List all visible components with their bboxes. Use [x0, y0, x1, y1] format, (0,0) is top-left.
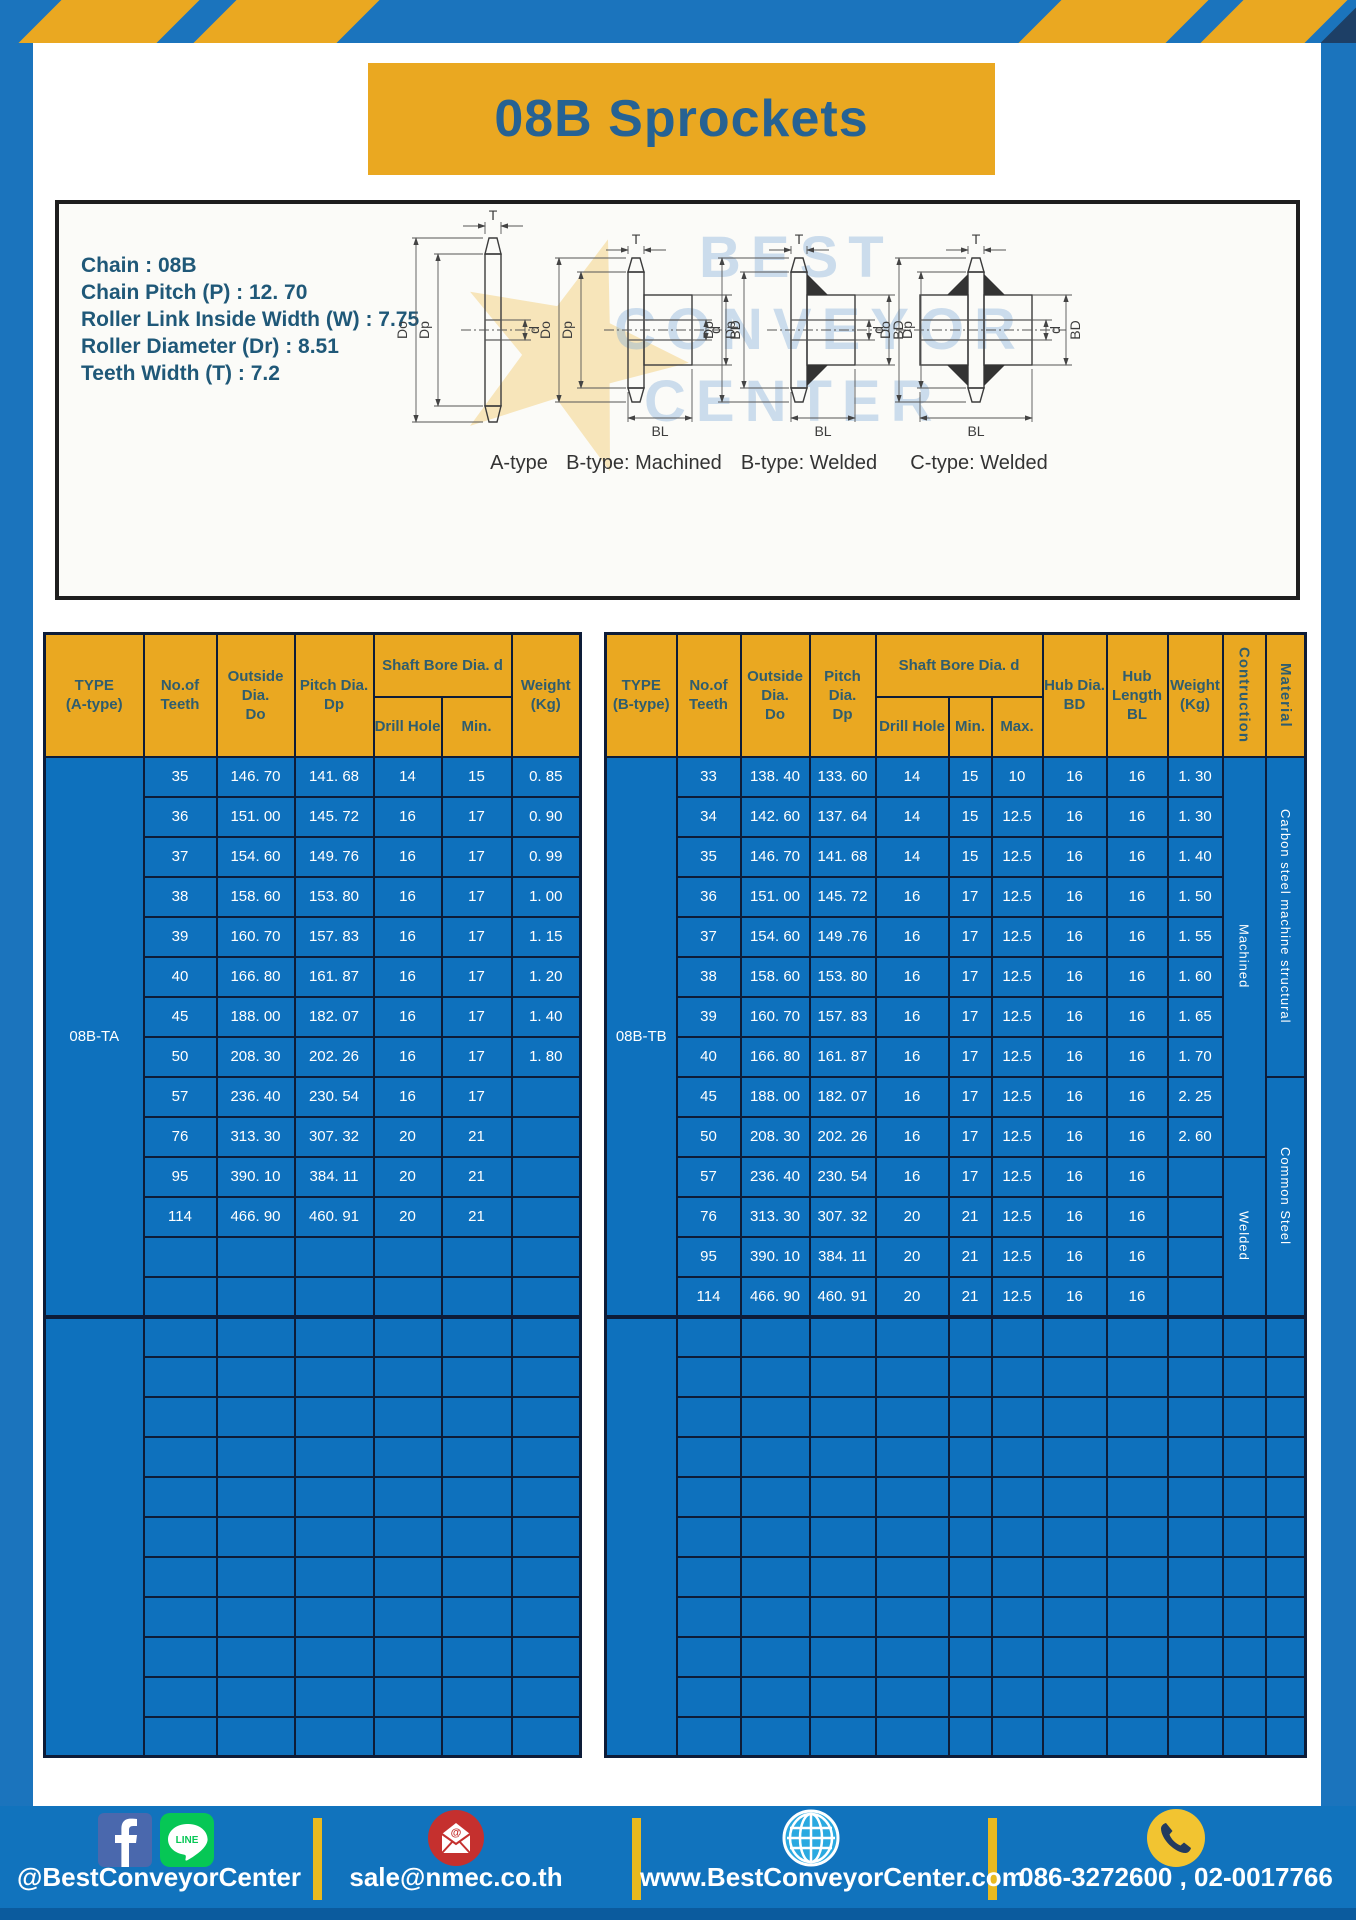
table-row: 76313. 30307. 32202112.51616	[606, 1197, 1306, 1237]
table-cell	[144, 1317, 217, 1357]
table-cell: 37	[677, 917, 741, 957]
table-cell	[512, 1637, 581, 1677]
table-cell: 202. 26	[295, 1037, 374, 1077]
table-cell	[810, 1357, 876, 1397]
table-cell: 12.5	[992, 997, 1043, 1037]
table-cell: 1. 55	[1168, 917, 1223, 957]
table-cell	[512, 1277, 581, 1317]
table-cell: 141. 68	[810, 837, 876, 877]
table-cell: 21	[949, 1237, 992, 1277]
table-cell: 208. 30	[741, 1117, 810, 1157]
table-cell: 16	[374, 877, 442, 917]
table-cell	[1168, 1157, 1223, 1197]
table-cell	[992, 1357, 1043, 1397]
table-cell	[677, 1717, 741, 1757]
table-cell	[1107, 1437, 1168, 1477]
table-cell	[1223, 1677, 1266, 1717]
table-cell: 146. 70	[741, 837, 810, 877]
table-cell: 153. 80	[810, 957, 876, 997]
table-cell	[374, 1277, 442, 1317]
table-row	[606, 1517, 1306, 1557]
table-cell	[876, 1557, 949, 1597]
table-cell	[144, 1237, 217, 1277]
table-cell: 16	[1043, 997, 1107, 1037]
table-row: 45188. 00182. 07161712.516162. 25Common …	[606, 1077, 1306, 1117]
table-cell: 16	[1107, 837, 1168, 877]
table-cell: 21	[442, 1117, 512, 1157]
table-cell	[1043, 1357, 1107, 1397]
table-cell	[1223, 1477, 1266, 1517]
table-cell	[295, 1477, 374, 1517]
table-cell	[217, 1677, 295, 1717]
table-cell: 460. 91	[810, 1277, 876, 1317]
table-cell	[876, 1317, 949, 1357]
table-cell	[295, 1317, 374, 1357]
table-cell: 10	[992, 757, 1043, 797]
table-cell: 142. 60	[741, 797, 810, 837]
table-cell	[1168, 1637, 1223, 1677]
table-cell: 12.5	[992, 1037, 1043, 1077]
table-cell	[949, 1397, 992, 1437]
table-cell: 236. 40	[217, 1077, 295, 1117]
table-cell	[374, 1717, 442, 1757]
table-cell: 39	[144, 917, 217, 957]
table-cell: 114	[677, 1277, 741, 1317]
table-cell	[876, 1637, 949, 1677]
table-cell: 138. 40	[741, 757, 810, 797]
table-cell	[144, 1477, 217, 1517]
table-cell	[949, 1437, 992, 1477]
table-cell	[374, 1317, 442, 1357]
website-url[interactable]: www.BestConveyorCenter.com	[640, 1862, 982, 1893]
table-cell	[1168, 1477, 1223, 1517]
table-cell: 21	[442, 1157, 512, 1197]
table-cell: 1. 00	[512, 877, 581, 917]
table-cell	[1168, 1237, 1223, 1277]
table-cell: 12.5	[992, 1197, 1043, 1237]
hazard-stripe	[19, 0, 200, 43]
table-cell	[876, 1677, 949, 1717]
svg-text:T: T	[972, 231, 981, 247]
hazard-stripe	[1019, 0, 1209, 43]
col-header-type: TYPE(A-type)	[45, 634, 144, 757]
email-address[interactable]: sale@nmec.co.th	[326, 1862, 586, 1893]
table-cell: 230. 54	[295, 1077, 374, 1117]
svg-text:BL: BL	[967, 423, 984, 439]
table-cell: 50	[677, 1117, 741, 1157]
table-cell	[374, 1477, 442, 1517]
table-cell	[810, 1517, 876, 1557]
table-row: 34142. 60137. 64141512.516161. 30	[606, 797, 1306, 837]
table-cell: 313. 30	[217, 1117, 295, 1157]
table-cell: 12.5	[992, 797, 1043, 837]
globe-icon[interactable]	[782, 1809, 840, 1867]
table-cell: 12.5	[992, 837, 1043, 877]
svg-text:Dp: Dp	[722, 321, 738, 339]
table-cell	[1168, 1597, 1223, 1637]
table-cell	[374, 1517, 442, 1557]
table-cell	[677, 1437, 741, 1477]
table-cell	[992, 1597, 1043, 1637]
table-cell: 35	[677, 837, 741, 877]
table-cell: 16	[1107, 1077, 1168, 1117]
table-cell	[144, 1717, 217, 1757]
table-cell: 114	[144, 1197, 217, 1237]
svg-text:Dp: Dp	[416, 321, 432, 339]
col-header-hub-dia: Hub Dia.BD	[1043, 634, 1107, 757]
table-cell	[1266, 1677, 1306, 1717]
table-cell: 313. 30	[741, 1197, 810, 1237]
table-cell: 16	[374, 1037, 442, 1077]
table-cell: 188. 00	[741, 1077, 810, 1117]
table-cell: 16	[876, 917, 949, 957]
table-cell	[810, 1477, 876, 1517]
table-cell: 17	[442, 1077, 512, 1117]
svg-text:BL: BL	[651, 423, 668, 439]
table-cell: 17	[442, 797, 512, 837]
table-cell	[1107, 1597, 1168, 1637]
table-cell	[876, 1597, 949, 1637]
table-cell	[442, 1597, 512, 1637]
table-cell: 460. 91	[295, 1197, 374, 1237]
table-cell: 57	[677, 1157, 741, 1197]
col-header-min: Min.	[949, 697, 992, 757]
col-header-pitch-dia: Pitch Dia.Dp	[295, 634, 374, 757]
material-cell: Common Steel	[1266, 1077, 1306, 1317]
table-cell	[1168, 1677, 1223, 1717]
table-cell: 16	[1043, 1117, 1107, 1157]
type-label-cell	[606, 1317, 677, 1757]
table-cell	[1266, 1357, 1306, 1397]
table-cell	[992, 1677, 1043, 1717]
table-cell: 154. 60	[741, 917, 810, 957]
table-cell	[1043, 1597, 1107, 1637]
table-cell: 0. 99	[512, 837, 581, 877]
table-cell: 1. 60	[1168, 957, 1223, 997]
table-row	[606, 1677, 1306, 1717]
table-cell	[741, 1437, 810, 1477]
table-cell	[295, 1517, 374, 1557]
table-cell	[1043, 1517, 1107, 1557]
table-cell: 202. 26	[810, 1117, 876, 1157]
table-cell	[1266, 1437, 1306, 1477]
table-cell: 1. 40	[512, 997, 581, 1037]
table-cell: 151. 00	[741, 877, 810, 917]
table-cell	[512, 1397, 581, 1437]
table-cell: 16	[374, 1077, 442, 1117]
table-cell: 40	[144, 957, 217, 997]
table-cell	[677, 1317, 741, 1357]
table-cell	[512, 1677, 581, 1717]
table-cell: 12.5	[992, 1077, 1043, 1117]
table-cell: 149 .76	[810, 917, 876, 957]
table-cell: 12.5	[992, 917, 1043, 957]
table-cell: 160. 70	[741, 997, 810, 1037]
table-cell	[512, 1237, 581, 1277]
svg-text:T: T	[795, 231, 804, 247]
table-cell: 16	[1107, 757, 1168, 797]
construction-cell: Machined	[1223, 757, 1266, 1157]
table-cell	[741, 1717, 810, 1757]
table-cell	[1107, 1357, 1168, 1397]
table-cell	[1266, 1717, 1306, 1757]
table-cell: 17	[442, 877, 512, 917]
footer-bottom-strip	[0, 1908, 1356, 1920]
table-cell	[442, 1557, 512, 1597]
svg-text:LINE: LINE	[176, 1835, 199, 1846]
table-cell: 20	[876, 1237, 949, 1277]
table-cell: 390. 10	[217, 1157, 295, 1197]
table-cell	[1223, 1557, 1266, 1597]
table-cell	[442, 1677, 512, 1717]
col-header-material: Material	[1266, 634, 1306, 757]
svg-text:Do: Do	[877, 321, 893, 339]
svg-text:Dp: Dp	[559, 321, 575, 339]
table-cell: 15	[949, 797, 992, 837]
table-cell	[876, 1397, 949, 1437]
table-cell: 50	[144, 1037, 217, 1077]
table-cell: 1. 15	[512, 917, 581, 957]
table-cell	[741, 1557, 810, 1597]
table-cell	[741, 1677, 810, 1717]
table-cell: 17	[949, 957, 992, 997]
table-cell: 20	[374, 1157, 442, 1197]
table-cell: 151. 00	[217, 797, 295, 837]
table-cell	[1223, 1437, 1266, 1477]
table-cell	[810, 1677, 876, 1717]
table-cell: 1. 70	[1168, 1037, 1223, 1077]
table-cell: 17	[949, 1037, 992, 1077]
table-cell	[949, 1597, 992, 1637]
table-cell	[217, 1317, 295, 1357]
table-cell: 145. 72	[295, 797, 374, 837]
table-cell: 1. 65	[1168, 997, 1223, 1037]
footer-contact-bar: LINE @BestConveyorCenter @ sale@nmec.co.…	[0, 1806, 1356, 1920]
svg-text:T: T	[489, 210, 498, 223]
table-cell: 146. 70	[217, 757, 295, 797]
diagram-box: BEST CONVEYOR CENTER Chain : 08B Chain P…	[55, 200, 1300, 600]
svg-text:Do: Do	[700, 321, 716, 339]
table-cell	[810, 1637, 876, 1677]
col-header-construction: Contruction	[1223, 634, 1266, 757]
table-cell: 35	[144, 757, 217, 797]
table-cell	[1107, 1517, 1168, 1557]
svg-text:BL: BL	[814, 423, 831, 439]
table-cell	[442, 1317, 512, 1357]
table-cell	[374, 1637, 442, 1677]
table-cell	[677, 1677, 741, 1717]
table-cell	[1107, 1637, 1168, 1677]
table-row: 40166. 80161. 87161712.516161. 70	[606, 1037, 1306, 1077]
table-cell	[949, 1717, 992, 1757]
table-row: 95390. 10384. 11202112.51616	[606, 1237, 1306, 1277]
table-cell	[992, 1477, 1043, 1517]
table-cell: 14	[876, 797, 949, 837]
table-cell: 158. 60	[741, 957, 810, 997]
table-row	[606, 1597, 1306, 1637]
table-cell	[810, 1717, 876, 1757]
col-header-drill-hole: Drill Hole	[876, 697, 949, 757]
table-cell: 236. 40	[741, 1157, 810, 1197]
type-label-cell: 08B-TA	[45, 757, 144, 1317]
table-cell	[512, 1157, 581, 1197]
table-cell: 21	[442, 1197, 512, 1237]
table-cell	[992, 1717, 1043, 1757]
table-cell	[217, 1557, 295, 1597]
table-row	[606, 1637, 1306, 1677]
facebook-icon[interactable]	[98, 1813, 152, 1867]
table-cell: 16	[876, 1037, 949, 1077]
table-cell: 20	[876, 1277, 949, 1317]
table-row: 36151. 00145. 72161712.516161. 50	[606, 877, 1306, 917]
table-cell	[295, 1277, 374, 1317]
table-cell: 145. 72	[810, 877, 876, 917]
table-row: 08B-TA35146. 70141. 6814150. 85	[45, 757, 581, 797]
table-cell	[1043, 1717, 1107, 1757]
table-cell: 39	[677, 997, 741, 1037]
table-cell	[949, 1557, 992, 1597]
table-row	[606, 1437, 1306, 1477]
svg-text:d: d	[1047, 326, 1063, 334]
table-cell: 14	[876, 837, 949, 877]
table-cell: 20	[876, 1197, 949, 1237]
table-cell	[442, 1357, 512, 1397]
table-cell: 1. 50	[1168, 877, 1223, 917]
table-cell: 16	[1043, 1077, 1107, 1117]
table-cell	[992, 1437, 1043, 1477]
table-cell	[442, 1477, 512, 1517]
table-cell	[374, 1437, 442, 1477]
table-cell	[1107, 1557, 1168, 1597]
table-row: 38158. 60153. 80161712.516161. 60	[606, 957, 1306, 997]
table-row	[606, 1477, 1306, 1517]
table-cell: 38	[677, 957, 741, 997]
table-row	[606, 1397, 1306, 1437]
table-cell	[295, 1717, 374, 1757]
table-cell: 16	[876, 1157, 949, 1197]
table-cell	[1223, 1597, 1266, 1637]
phone-numbers[interactable]: 086-3272600 , 02-0017766	[1000, 1862, 1352, 1893]
table-cell: 466. 90	[741, 1277, 810, 1317]
email-icon[interactable]: @	[428, 1810, 484, 1866]
table-cell: 182. 07	[810, 1077, 876, 1117]
col-header-type: TYPE(B-type)	[606, 634, 677, 757]
table-cell	[442, 1277, 512, 1317]
table-cell	[512, 1557, 581, 1597]
table-cell: 1. 80	[512, 1037, 581, 1077]
table-cell	[1223, 1397, 1266, 1437]
table-cell	[374, 1597, 442, 1637]
table-cell	[295, 1397, 374, 1437]
table-cell: 17	[949, 917, 992, 957]
table-cell	[1168, 1557, 1223, 1597]
sprocket-cross-section-drawings: TDoDpdTDoDpdBDBLTDoDpdBDBLTDoDpdBDBL	[394, 210, 1294, 455]
table-cell	[374, 1557, 442, 1597]
table-cell: 16	[1107, 877, 1168, 917]
table-cell: 16	[1107, 1117, 1168, 1157]
table-cell	[949, 1517, 992, 1557]
svg-text:BD: BD	[1067, 320, 1083, 339]
table-cell	[992, 1637, 1043, 1677]
table-cell	[1223, 1517, 1266, 1557]
table-cell	[949, 1317, 992, 1357]
table-cell: 38	[144, 877, 217, 917]
table-cell: 16	[1043, 797, 1107, 837]
phone-icon[interactable]	[1147, 1809, 1205, 1867]
table-cell: 12.5	[992, 957, 1043, 997]
social-handle[interactable]: @BestConveyorCenter	[5, 1862, 313, 1893]
sprocket-table-a-type: TYPE(A-type) No.ofTeeth OutsideDia.Do Pi…	[43, 632, 582, 1758]
table-cell	[1043, 1557, 1107, 1597]
table-cell: 76	[144, 1117, 217, 1157]
table-cell	[1043, 1397, 1107, 1437]
table-cell: 16	[1043, 1237, 1107, 1277]
line-icon[interactable]: LINE	[160, 1813, 214, 1867]
table-row: 50208. 30202. 26161712.516162. 60	[606, 1117, 1306, 1157]
table-cell: 158. 60	[217, 877, 295, 917]
title-banner: 08B Sprockets	[368, 63, 995, 175]
table-cell: 17	[949, 1157, 992, 1197]
table-cell: 2. 25	[1168, 1077, 1223, 1117]
table-cell	[217, 1717, 295, 1757]
svg-text:Do: Do	[537, 321, 553, 339]
table-cell: 466. 90	[217, 1197, 295, 1237]
table-cell: 1. 20	[512, 957, 581, 997]
table-row	[45, 1317, 581, 1357]
table-cell: 1. 30	[1168, 797, 1223, 837]
table-cell: 149. 76	[295, 837, 374, 877]
table-cell: 16	[1043, 1197, 1107, 1237]
table-cell: 17	[949, 997, 992, 1037]
svg-text:Dp: Dp	[899, 321, 915, 339]
table-cell: 161. 87	[295, 957, 374, 997]
table-cell: 16	[876, 957, 949, 997]
type-label-cell: 08B-TB	[606, 757, 677, 1317]
table-row	[606, 1357, 1306, 1397]
table-cell	[876, 1437, 949, 1477]
table-cell: 16	[1043, 917, 1107, 957]
table-cell	[217, 1637, 295, 1677]
table-cell: 166. 80	[217, 957, 295, 997]
table-cell	[1168, 1317, 1223, 1357]
table-cell	[144, 1637, 217, 1677]
table-cell	[144, 1597, 217, 1637]
table-cell: 17	[442, 917, 512, 957]
table-cell	[992, 1317, 1043, 1357]
table-cell	[512, 1477, 581, 1517]
table-cell	[810, 1317, 876, 1357]
table-cell: 208. 30	[217, 1037, 295, 1077]
table-cell	[374, 1677, 442, 1717]
table-cell	[295, 1637, 374, 1677]
col-header-hub-length: HubLengthBL	[1107, 634, 1168, 757]
table-cell	[1168, 1357, 1223, 1397]
table-cell	[512, 1197, 581, 1237]
table-cell	[876, 1477, 949, 1517]
table-cell: 34	[677, 797, 741, 837]
table-cell	[144, 1517, 217, 1557]
table-cell	[1043, 1317, 1107, 1357]
table-cell	[374, 1357, 442, 1397]
table-cell: 21	[949, 1197, 992, 1237]
table-cell: 16	[876, 997, 949, 1037]
table-cell: 188. 00	[217, 997, 295, 1037]
table-cell	[1107, 1717, 1168, 1757]
table-cell	[442, 1237, 512, 1277]
col-header-min: Min.	[442, 697, 512, 757]
table-cell	[1168, 1197, 1223, 1237]
table-cell	[217, 1517, 295, 1557]
